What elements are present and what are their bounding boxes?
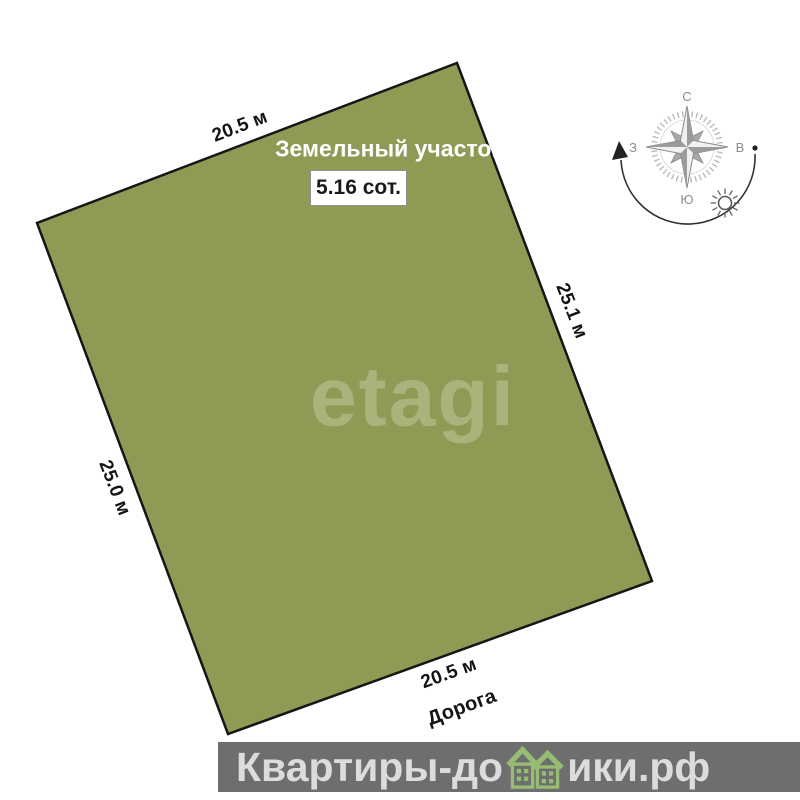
- area-badge-value: 5.16 сот.: [316, 176, 401, 200]
- compass-north-label: С: [682, 89, 691, 104]
- compass-rose: С Ю З В: [600, 70, 770, 230]
- footer-brand-left: Квартиры-до: [236, 747, 503, 788]
- compass-east-label: В: [736, 140, 745, 155]
- etagi-watermark: etagi: [310, 349, 516, 446]
- sun-icon: [711, 189, 740, 218]
- houses-icon: [505, 742, 565, 790]
- compass-rose-icon: С Ю З В: [600, 70, 770, 230]
- compass-south-label: Ю: [680, 192, 693, 207]
- footer-watermark-band: Квартиры-до ики.рф: [218, 742, 800, 792]
- sun-path-arrowhead: [612, 141, 628, 160]
- plot-title: Земельный участок: [275, 136, 503, 163]
- compass-west-label: З: [629, 140, 637, 155]
- sun-path-start-dot: [752, 145, 757, 150]
- area-badge: 5.16 сот.: [310, 170, 407, 206]
- footer-brand-right: ики.рф: [567, 747, 710, 788]
